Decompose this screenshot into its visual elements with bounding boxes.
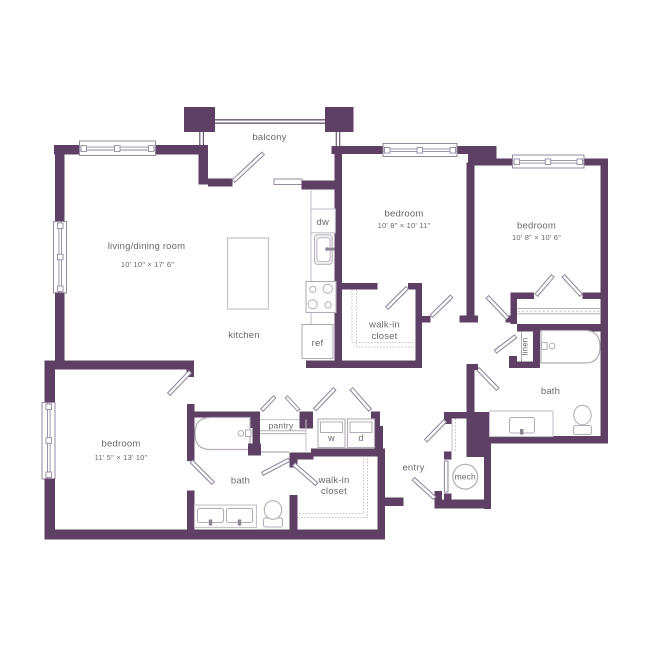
svg-text:closet: closet [371,331,397,342]
svg-text:10' 8" × 10' 6": 10' 8" × 10' 6" [512,233,561,242]
svg-text:bedroom: bedroom [102,438,141,449]
svg-text:bedroom: bedroom [517,221,556,232]
svg-text:linen: linen [521,338,530,356]
svg-text:10' 10" × 17' 6": 10' 10" × 17' 6" [121,260,174,269]
svg-text:w: w [327,433,335,443]
svg-text:entry: entry [402,462,424,473]
svg-text:bath: bath [541,386,560,397]
svg-text:10' 8" × 10' 11": 10' 8" × 10' 11" [378,221,431,230]
svg-text:mech: mech [455,472,476,482]
svg-text:dw: dw [317,217,330,228]
svg-text:walk-in: walk-in [318,475,350,486]
svg-text:walk-in: walk-in [368,320,400,331]
svg-text:11' 5" × 13' 10": 11' 5" × 13' 10" [95,453,148,462]
svg-text:d: d [358,433,363,443]
svg-text:pantry: pantry [269,420,294,430]
svg-text:balcony: balcony [252,132,286,143]
svg-text:bedroom: bedroom [385,209,424,220]
svg-text:living/dining room: living/dining room [108,241,186,252]
svg-text:bath: bath [231,475,250,486]
svg-text:kitchen: kitchen [228,330,260,341]
svg-text:closet: closet [321,486,347,497]
svg-text:ref: ref [312,338,324,349]
